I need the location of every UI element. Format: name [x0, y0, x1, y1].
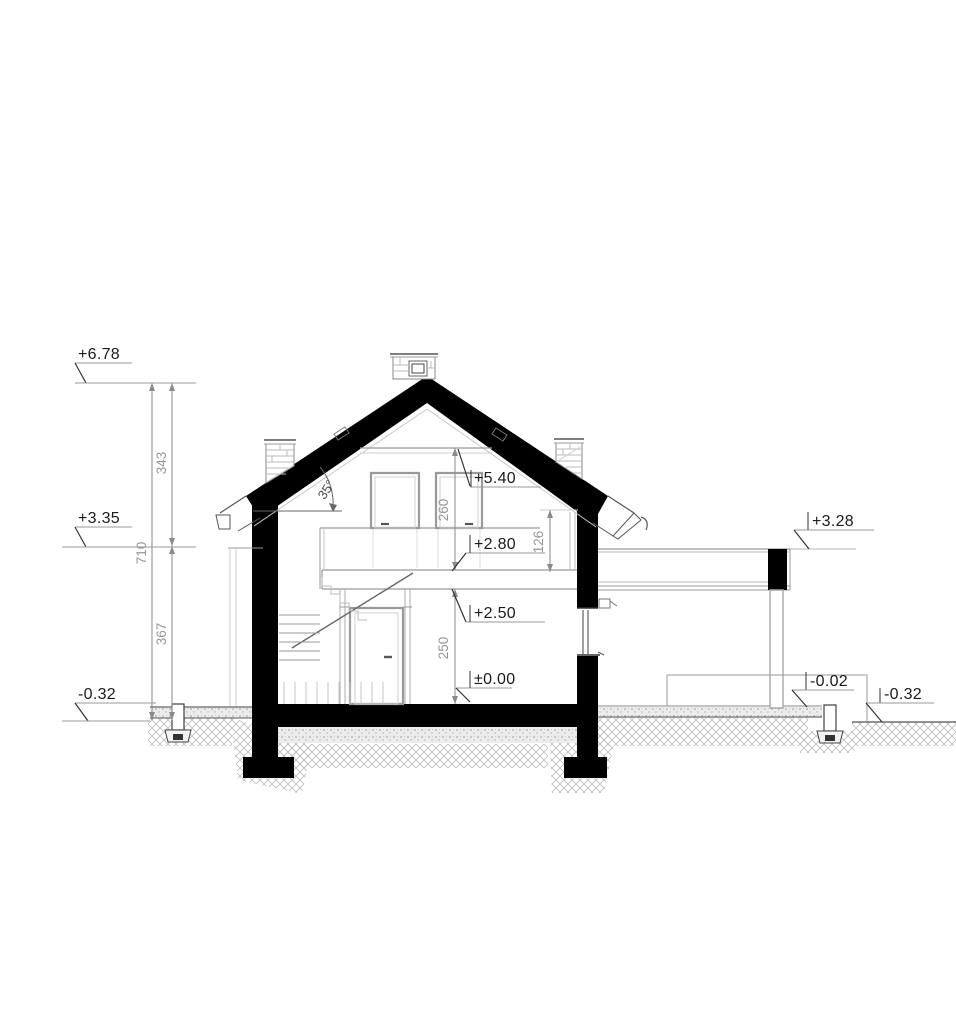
cross-section-drawing: 710 343 367 260 250 126 35° +6.78 +3.35 … — [0, 0, 956, 1014]
marker-annex-roof-label: +3.28 — [812, 513, 854, 530]
marker-ground-left-label: -0.32 — [78, 686, 116, 703]
right-wall-upper-cut — [577, 508, 598, 608]
left-footing — [243, 757, 294, 778]
right-wall-window — [577, 608, 604, 655]
marker-ground-left: -0.32 — [62, 686, 156, 721]
ground-floor-door — [350, 608, 403, 704]
dim-total-height: 710 — [134, 542, 149, 565]
marker-ridge-label: +6.78 — [78, 346, 120, 363]
marker-eaves-left-label: +3.35 — [78, 510, 120, 527]
annex-porch — [598, 549, 867, 721]
dim-upper-height: 343 — [154, 452, 169, 475]
marker-ground-ceiling-label: +2.50 — [474, 605, 516, 622]
marker-eaves-left: +3.35 — [62, 510, 196, 547]
marker-annex-floor-label: -0.02 — [810, 673, 848, 690]
marker-ridge: +6.78 — [75, 346, 196, 383]
marker-ground-ceiling: +2.50 — [452, 589, 545, 622]
chimney-ridge — [390, 354, 438, 379]
dim-attic-room: 260 — [436, 499, 451, 522]
marker-attic-floor-label: +2.80 — [474, 536, 516, 553]
attic-slab — [322, 570, 577, 589]
right-footing — [564, 757, 607, 778]
marker-ground-right: -0.32 — [866, 686, 934, 722]
gutter-right — [641, 517, 647, 530]
roof-pitch-label: 35° — [315, 477, 338, 502]
marker-collar-label: +5.40 — [474, 470, 516, 487]
dim-ground-room: 250 — [436, 637, 451, 660]
annex-beam — [768, 549, 787, 590]
gutter-left — [216, 515, 230, 529]
elevation-markers: +6.78 +3.35 -0.32 +5.40 — [62, 346, 934, 722]
marker-ground-floor: ±0.00 — [456, 671, 515, 702]
dim-knee-wall: 126 — [531, 531, 546, 554]
marker-ground-right-label: -0.32 — [884, 686, 922, 703]
drawing-sheet: 710 343 367 260 250 126 35° +6.78 +3.35 … — [0, 0, 956, 1014]
attic-door-1 — [371, 473, 419, 528]
wall-bracket — [599, 599, 610, 608]
marker-ground-floor-label: ±0.00 — [474, 671, 515, 688]
fascia-right — [613, 513, 641, 539]
floor-slab-cut — [252, 704, 598, 727]
dim-lower-height: 367 — [154, 623, 169, 646]
annex-post — [770, 590, 783, 708]
marker-annex-roof: +3.28 — [794, 512, 874, 549]
marker-annex-floor: -0.02 — [792, 672, 854, 707]
